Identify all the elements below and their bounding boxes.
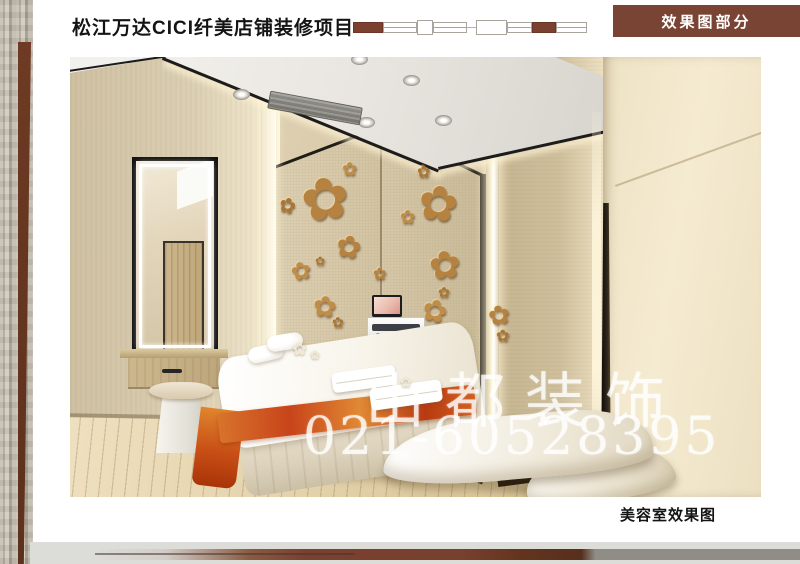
flower-relief-icon xyxy=(342,160,357,178)
page-title: 松江万达CICI纤美店铺装修项目 xyxy=(72,13,354,40)
vanity-console-top xyxy=(120,349,228,358)
machine-screen xyxy=(374,297,400,314)
flower-relief-icon xyxy=(496,329,509,345)
ornament-segment xyxy=(476,20,507,35)
mirror-led-border xyxy=(139,164,211,348)
flower-relief-icon xyxy=(415,178,462,231)
rendering-image: 山都装饰 021-60528395 xyxy=(70,57,761,497)
section-label: 效果图部分 xyxy=(613,5,800,37)
flower-relief-icon xyxy=(315,255,325,267)
ornament-segment xyxy=(433,22,467,33)
flower-relief-icon xyxy=(486,300,512,329)
flower-relief-icon xyxy=(373,267,386,283)
flower-decor-icon xyxy=(310,349,320,361)
drawer-handle xyxy=(162,369,182,373)
presentation-page: 松江万达CICI纤美店铺装修项目 效果图部分 xyxy=(0,0,800,564)
vanity-stool-seat xyxy=(149,382,213,399)
ornament-segment xyxy=(417,20,433,35)
flower-relief-icon xyxy=(332,315,344,329)
flower-relief-icon xyxy=(427,245,463,286)
flower-relief-icon xyxy=(334,231,364,265)
downlight-icon xyxy=(435,115,452,126)
ornament-segment xyxy=(353,22,383,33)
ornament-segment xyxy=(383,22,417,33)
beauty-machine-monitor xyxy=(372,295,402,317)
ornament-segment xyxy=(556,22,587,33)
ornament-segment xyxy=(532,22,556,33)
footer-bar xyxy=(30,542,800,564)
downlight-icon xyxy=(403,75,420,86)
section-label-text: 效果图部分 xyxy=(661,11,751,32)
ornament-segment xyxy=(467,22,476,33)
downlight-icon xyxy=(233,89,250,100)
wall-mirror xyxy=(132,157,218,355)
flower-decor-icon xyxy=(292,340,307,358)
image-caption: 美容室效果图 xyxy=(620,504,716,525)
ornament-segment xyxy=(507,22,532,33)
flower-relief-icon xyxy=(400,208,415,226)
divider-ornament xyxy=(353,19,587,35)
footer-line xyxy=(95,553,355,555)
watermark-phone: 021-60528395 xyxy=(303,407,721,467)
